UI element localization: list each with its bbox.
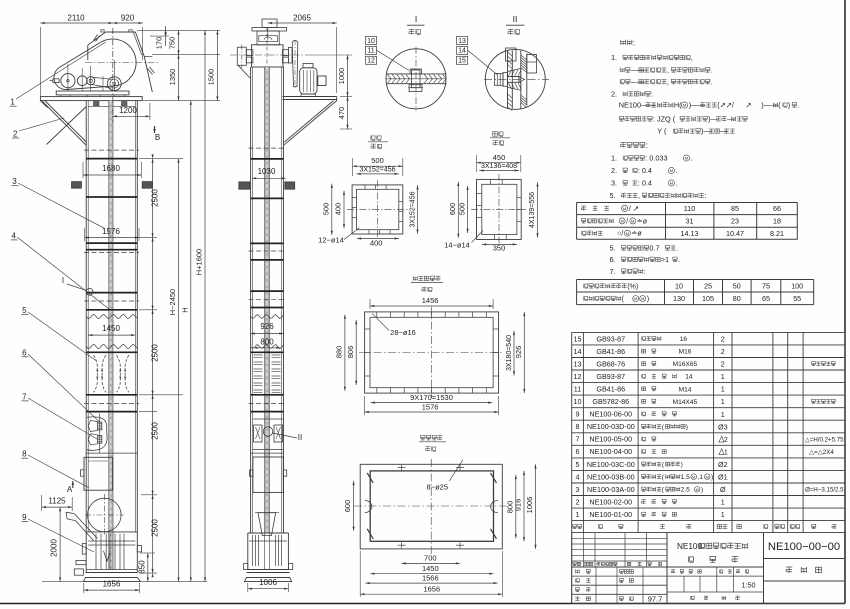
svg-text:I: I: [62, 276, 64, 285]
svg-text:NE100-04-00: NE100-04-00: [589, 447, 632, 456]
svg-text:9: 9: [22, 513, 27, 522]
svg-text:.: .: [691, 154, 693, 163]
svg-text:): ): [647, 295, 649, 303]
svg-text:.: .: [678, 255, 680, 264]
svg-text:)——: )——: [761, 101, 779, 110]
svg-text:1456: 1456: [422, 296, 439, 305]
svg-text:1: 1: [10, 98, 15, 107]
svg-text:8.21: 8.21: [770, 229, 784, 238]
svg-text:926: 926: [514, 346, 523, 359]
svg-text:M16X65: M16X65: [673, 361, 698, 368]
svg-text:2: 2: [724, 437, 728, 444]
svg-text:1450: 1450: [102, 324, 120, 333]
svg-text:14: 14: [458, 48, 466, 55]
svg-text:4X139=556: 4X139=556: [529, 192, 536, 228]
svg-text:1.: 1.: [611, 53, 617, 62]
svg-text:: JZQ (: : JZQ (: [653, 115, 676, 124]
svg-text:B: B: [155, 133, 160, 142]
svg-text:GB93-87: GB93-87: [596, 334, 625, 343]
svg-text:9X170=1530: 9X170=1530: [410, 393, 453, 402]
svg-text:13: 13: [458, 38, 466, 45]
svg-text:7: 7: [576, 435, 580, 444]
svg-text:M16: M16: [679, 349, 692, 356]
svg-text:I: I: [415, 14, 417, 24]
svg-text:Ø=H−3.15/2.5: Ø=H−3.15/2.5: [805, 487, 844, 494]
svg-text:Ø1: Ø1: [718, 473, 728, 482]
svg-text:806: 806: [346, 346, 355, 359]
svg-text:4: 4: [11, 231, 16, 240]
svg-text:11: 11: [574, 385, 581, 394]
svg-text:800: 800: [260, 338, 274, 347]
svg-text:400: 400: [334, 203, 343, 216]
svg-text:850: 850: [138, 560, 147, 574]
svg-text:16: 16: [680, 336, 688, 343]
svg-text:II: II: [513, 14, 518, 24]
svg-text:2500: 2500: [151, 422, 160, 440]
svg-text:1.: 1.: [611, 154, 617, 163]
svg-text:(↗↗/: (↗↗/: [717, 101, 735, 110]
svg-text:5: 5: [576, 460, 580, 469]
svg-text:2: 2: [721, 347, 725, 356]
svg-text:18: 18: [773, 217, 781, 226]
svg-text:): ): [701, 487, 703, 494]
svg-text:1: 1: [721, 385, 725, 394]
svg-text:14−ø14: 14−ø14: [444, 241, 470, 250]
svg-text:GB41-86: GB41-86: [596, 347, 625, 356]
svg-text:130: 130: [673, 294, 685, 303]
svg-text:3X152=456: 3X152=456: [359, 166, 395, 173]
svg-text:500: 500: [371, 156, 384, 165]
svg-text:↗: ↗: [745, 101, 751, 110]
svg-text:3X136=408: 3X136=408: [481, 163, 517, 170]
svg-text:450: 450: [493, 153, 506, 162]
svg-text:8−ø25: 8−ø25: [427, 483, 448, 492]
svg-text:M: M: [641, 296, 644, 301]
svg-text:Ø3: Ø3: [718, 422, 728, 431]
svg-text:.: .: [711, 77, 713, 86]
svg-text:600: 600: [343, 500, 352, 513]
svg-text:28−ø16: 28−ø16: [390, 328, 416, 337]
svg-text:0.7: 0.7: [649, 244, 659, 253]
svg-text:: 0.033: : 0.033: [645, 154, 667, 163]
svg-text:): ): [681, 462, 683, 469]
svg-text:470: 470: [337, 107, 346, 120]
svg-text:1: 1: [721, 410, 725, 419]
svg-text:.: .: [711, 66, 713, 75]
svg-text:NE100-03C-00: NE100-03C-00: [587, 460, 635, 469]
svg-text:50: 50: [733, 281, 741, 290]
svg-text:1: 1: [724, 449, 728, 456]
svg-text:NE100-02-00: NE100-02-00: [589, 497, 632, 506]
svg-text:2: 2: [721, 360, 725, 369]
svg-text:1200: 1200: [119, 106, 137, 115]
svg-text:12: 12: [574, 372, 582, 381]
svg-text:,: ,: [667, 77, 669, 86]
svg-text:5.: 5.: [610, 191, 616, 200]
svg-text:110: 110: [684, 204, 695, 213]
svg-text:66: 66: [773, 204, 781, 213]
svg-text:: 0.4: : 0.4: [638, 166, 652, 175]
svg-text:2: 2: [721, 335, 725, 344]
svg-text:1:50: 1:50: [742, 581, 756, 590]
svg-text:1006: 1006: [259, 578, 277, 587]
svg-text:916: 916: [514, 499, 523, 512]
svg-text:15: 15: [574, 334, 582, 343]
svg-text:1500: 1500: [206, 69, 215, 86]
svg-text:880: 880: [335, 346, 344, 359]
svg-text:2.: 2.: [611, 166, 617, 175]
svg-text:M: M: [706, 475, 709, 479]
svg-text:55: 55: [793, 294, 801, 303]
svg-text:1: 1: [721, 510, 725, 519]
svg-text:15: 15: [458, 58, 466, 65]
svg-text:12: 12: [367, 58, 375, 65]
svg-text::: :: [651, 90, 653, 99]
svg-text:2110: 2110: [67, 14, 85, 23]
svg-text:75: 75: [762, 281, 770, 290]
svg-text:/: /: [626, 217, 628, 225]
svg-text::: :: [705, 191, 707, 200]
svg-text:H(: H(: [674, 101, 682, 110]
svg-text:1450: 1450: [422, 564, 439, 573]
svg-text:65: 65: [762, 294, 770, 303]
svg-text:13: 13: [574, 359, 582, 368]
svg-text:,: ,: [691, 53, 693, 62]
svg-text:M: M: [634, 296, 637, 301]
svg-text:GB68-76: GB68-76: [596, 359, 625, 368]
svg-text:△=△2X4: △=△2X4: [809, 449, 834, 456]
svg-text:500: 500: [457, 203, 466, 216]
svg-text:6: 6: [22, 348, 27, 357]
svg-text:25: 25: [704, 281, 712, 290]
svg-text:H: H: [180, 307, 189, 312]
svg-text:.: .: [676, 179, 678, 188]
svg-text:5: 5: [22, 306, 27, 315]
svg-text:NE100-05-00: NE100-05-00: [589, 435, 632, 444]
svg-text:3X180=540: 3X180=540: [506, 335, 513, 371]
svg-text:——: ——: [631, 66, 646, 75]
svg-text:(%): (%): [627, 283, 638, 291]
svg-text:M: M: [692, 475, 695, 479]
svg-text:1350: 1350: [168, 69, 177, 86]
svg-text:NE100: NE100: [677, 542, 702, 551]
svg-text:500: 500: [321, 203, 330, 216]
svg-text:14: 14: [685, 374, 693, 381]
svg-text:NE100-03A-00: NE100-03A-00: [587, 485, 635, 494]
svg-text:600: 600: [448, 203, 457, 216]
svg-text:): ): [711, 474, 713, 481]
svg-text:≐ø: ≐ø: [637, 217, 648, 225]
svg-text:1656: 1656: [103, 580, 121, 589]
svg-text:8: 8: [22, 450, 27, 459]
svg-text:1576: 1576: [422, 402, 439, 411]
svg-text:7: 7: [22, 392, 27, 401]
svg-text::: :: [633, 39, 635, 48]
svg-text:3: 3: [12, 177, 17, 186]
svg-text:85: 85: [731, 204, 739, 213]
svg-text:97.7: 97.7: [648, 595, 663, 604]
svg-text:.: .: [797, 101, 799, 110]
svg-text:≐ø: ≐ø: [631, 230, 642, 238]
svg-text:9: 9: [576, 410, 580, 419]
svg-text:: 0.4: : 0.4: [638, 179, 652, 188]
svg-text:8: 8: [576, 422, 580, 431]
svg-text:2: 2: [576, 497, 580, 506]
svg-text:,: ,: [667, 66, 669, 75]
svg-text:): ): [788, 101, 790, 110]
svg-text:1576: 1576: [102, 227, 120, 236]
svg-text:——: ——: [631, 77, 646, 86]
svg-text::: :: [644, 267, 646, 276]
svg-text:750: 750: [168, 37, 177, 50]
svg-text:1.5: 1.5: [681, 474, 690, 481]
svg-text:II: II: [298, 433, 302, 442]
svg-text:3: 3: [576, 485, 580, 494]
svg-text:11: 11: [367, 48, 374, 55]
svg-text:1: 1: [576, 510, 580, 519]
svg-text:M: M: [626, 231, 629, 236]
svg-text:M: M: [696, 488, 699, 492]
svg-text:10: 10: [675, 281, 683, 290]
svg-text:1: 1: [721, 498, 725, 507]
svg-text:2.: 2.: [611, 90, 617, 99]
svg-text:M14: M14: [679, 386, 692, 393]
svg-text:105: 105: [702, 294, 714, 303]
svg-text:H−2450: H−2450: [168, 289, 177, 315]
svg-text:12−ø14: 12−ø14: [318, 236, 344, 245]
svg-text:1: 1: [721, 372, 725, 381]
svg-text:100: 100: [791, 281, 803, 290]
svg-text:1566: 1566: [422, 573, 439, 582]
svg-text:H+1600: H+1600: [195, 249, 204, 275]
svg-text:1: 1: [721, 397, 725, 406]
svg-text:/ ↗: / ↗: [629, 204, 639, 213]
svg-text:1006: 1006: [525, 497, 534, 514]
svg-text:.: .: [676, 244, 678, 253]
svg-text:23: 23: [731, 217, 739, 226]
svg-text:GB41-86: GB41-86: [596, 385, 625, 394]
svg-text:4: 4: [576, 472, 580, 481]
svg-text:△=H/0.2+5.75: △=H/0.2+5.75: [805, 436, 844, 443]
svg-text:14: 14: [574, 347, 582, 356]
svg-text:GB5782-86: GB5782-86: [592, 397, 629, 406]
svg-text:2000: 2000: [50, 539, 59, 557]
svg-text:A: A: [67, 485, 73, 494]
svg-text:3.: 3.: [611, 179, 617, 188]
svg-text:2065: 2065: [293, 14, 311, 23]
svg-text:2500: 2500: [151, 519, 160, 537]
svg-text:NE100-01-00: NE100-01-00: [589, 510, 632, 519]
svg-text:1656: 1656: [423, 584, 440, 593]
svg-text:1125: 1125: [48, 497, 66, 506]
svg-text:350: 350: [493, 244, 506, 253]
svg-text:926: 926: [260, 322, 274, 331]
svg-text:400: 400: [370, 238, 383, 247]
svg-text:M: M: [631, 219, 634, 224]
svg-text:.: .: [676, 166, 678, 175]
svg-text:2500: 2500: [151, 189, 160, 207]
svg-text:2500: 2500: [151, 344, 160, 362]
svg-text:700: 700: [424, 554, 437, 563]
svg-text:Ø: Ø: [720, 485, 726, 494]
svg-text:14.13: 14.13: [681, 229, 699, 238]
svg-text::: :: [646, 141, 648, 150]
svg-text:NE100-06-00: NE100-06-00: [589, 410, 632, 419]
svg-text:1000: 1000: [337, 68, 346, 85]
svg-text:1030: 1030: [258, 167, 276, 176]
svg-text:10: 10: [574, 397, 582, 406]
svg-text:Y (: Y (: [657, 127, 667, 136]
svg-text:3X152=456: 3X152=456: [409, 191, 416, 227]
svg-text:31: 31: [686, 217, 694, 226]
svg-text:6: 6: [576, 447, 580, 456]
svg-text:): ): [686, 424, 688, 431]
svg-text:7.: 7.: [610, 267, 616, 276]
svg-text:2.5: 2.5: [681, 487, 690, 494]
svg-text:6.: 6.: [610, 255, 616, 264]
svg-text:—: —: [727, 115, 735, 124]
svg-text:NE100-03B-00: NE100-03B-00: [587, 472, 635, 481]
svg-text:NE100-03D-00: NE100-03D-00: [587, 422, 635, 431]
svg-text:M14X45: M14X45: [673, 399, 698, 406]
svg-text:GB93-87: GB93-87: [596, 372, 625, 381]
svg-text:NE100−00−00: NE100−00−00: [768, 541, 840, 553]
svg-text:1680: 1680: [102, 164, 120, 173]
svg-text:○/: ○/: [617, 230, 623, 238]
svg-text:NE100——: NE100——: [619, 101, 657, 110]
svg-text:5.: 5.: [610, 244, 616, 253]
svg-text:2: 2: [13, 130, 18, 139]
svg-text:920: 920: [121, 14, 135, 23]
svg-text:10.47: 10.47: [726, 229, 744, 238]
svg-text:170: 170: [155, 37, 164, 50]
svg-text:,1: ,1: [698, 474, 704, 481]
svg-text:)——: )——: [689, 101, 707, 110]
svg-text:M: M: [620, 219, 623, 224]
svg-text:,: ,: [638, 191, 640, 200]
svg-text:10: 10: [367, 38, 375, 45]
svg-text:>1: >1: [661, 255, 669, 264]
svg-text:80: 80: [733, 294, 741, 303]
svg-text:Ø2: Ø2: [718, 460, 728, 469]
